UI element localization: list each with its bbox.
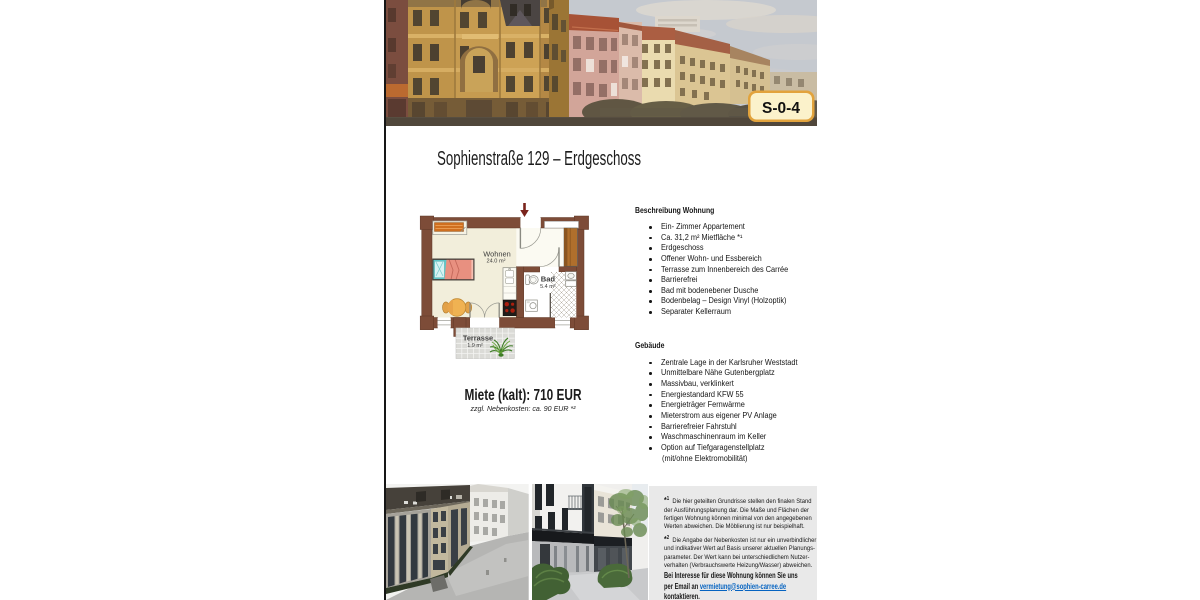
svg-text:S-0-4: S-0-4 (762, 100, 800, 117)
svg-text:5.4 m²: 5.4 m² (540, 284, 556, 290)
svg-text:Wohnen: Wohnen (483, 249, 510, 258)
svg-text:Terrasse: Terrasse (463, 334, 493, 343)
svg-text:24.0 m²: 24.0 m² (487, 259, 506, 265)
svg-text:1.9 m²: 1.9 m² (467, 343, 483, 349)
svg-text:Bad: Bad (541, 275, 556, 284)
